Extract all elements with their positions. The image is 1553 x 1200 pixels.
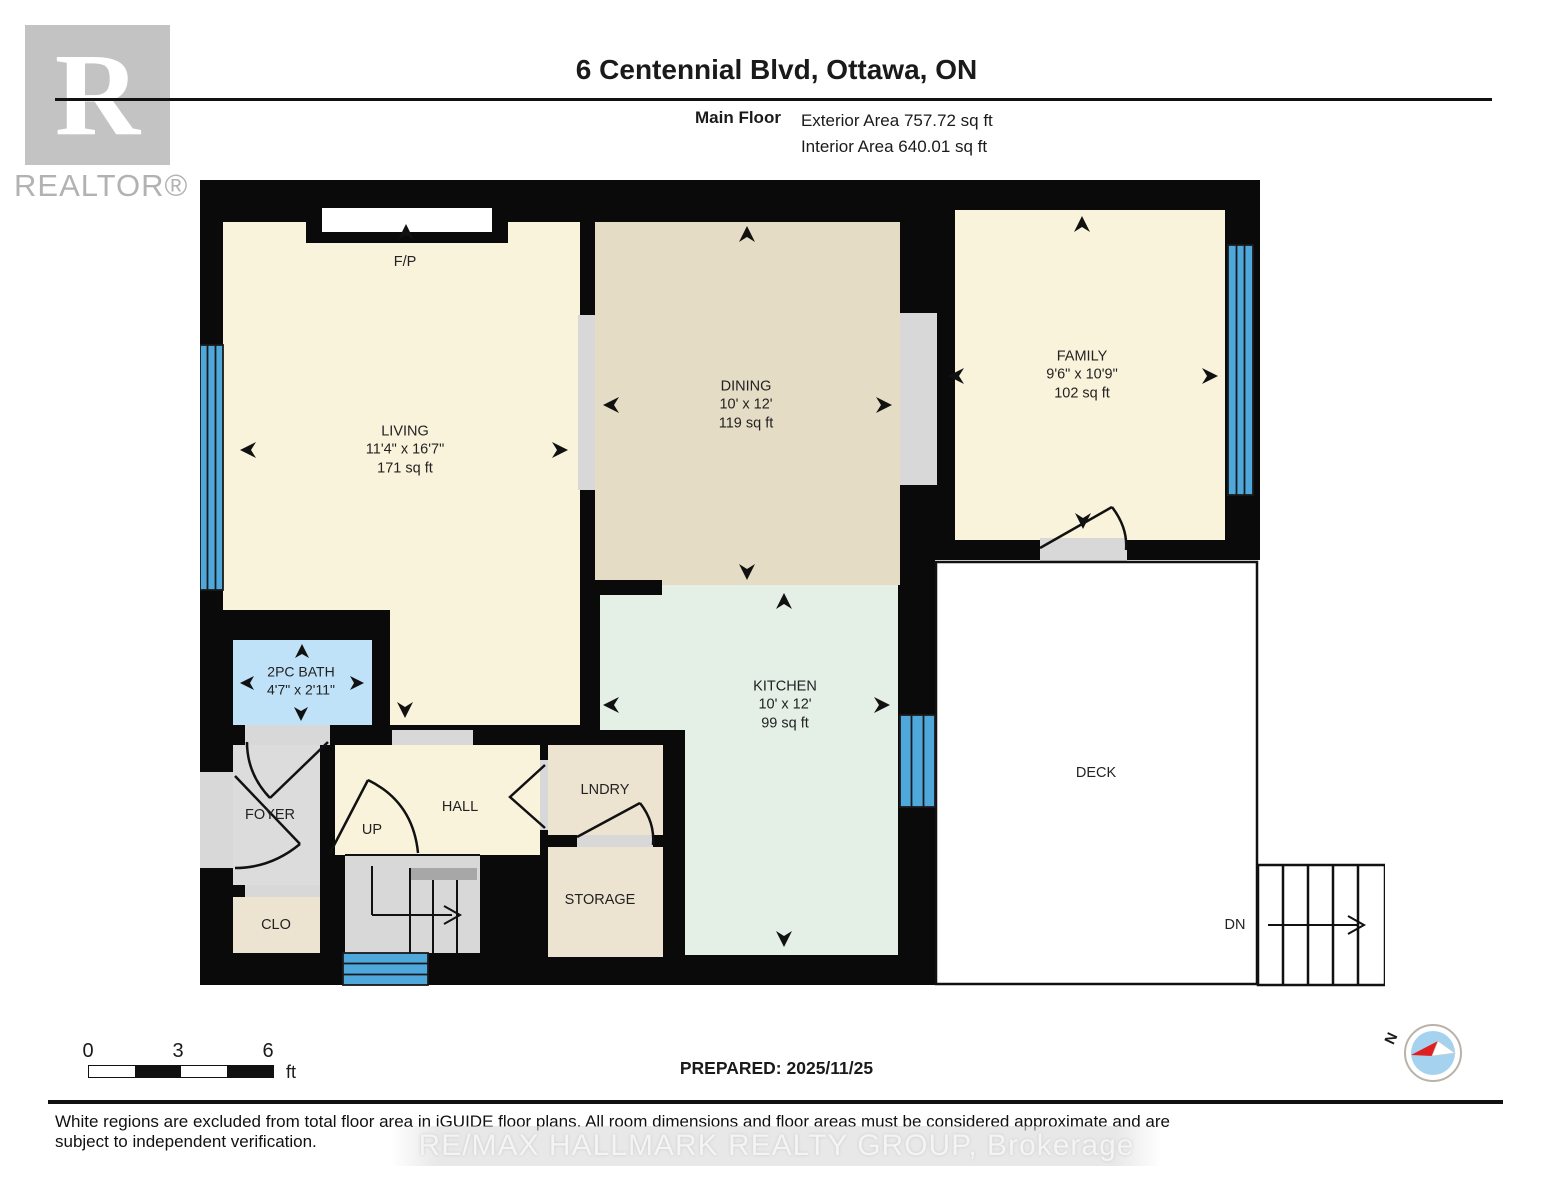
- dining-label: DINING 10' x 12' 119 sq ft: [719, 378, 774, 433]
- page-title: 6 Centennial Blvd, Ottawa, ON: [0, 54, 1553, 86]
- closet-label: CLO: [261, 916, 291, 934]
- dining-area: 119 sq ft: [719, 414, 774, 432]
- family-window: [1228, 245, 1253, 495]
- kitchen-name: KITCHEN: [753, 678, 817, 696]
- realtor-logo: R: [25, 25, 170, 165]
- kitchen-window: [900, 715, 935, 807]
- kitchen-area: 99 sq ft: [753, 714, 817, 732]
- fireplace-label: F/P: [394, 253, 417, 271]
- title-divider: [55, 98, 1492, 101]
- kitchen-label: KITCHEN 10' x 12' 99 sq ft: [753, 678, 817, 733]
- bath-label: 2PC BATH 4'7" x 2'11": [267, 663, 335, 698]
- stairs-up-linework: [345, 855, 480, 953]
- plan-linework: [200, 180, 1385, 990]
- compass: N: [1402, 1022, 1464, 1084]
- family-dims: 9'6" x 10'9": [1046, 366, 1117, 384]
- deck-label: DECK: [1076, 764, 1116, 782]
- foyer-label: FOYER: [245, 806, 295, 824]
- brokerage-watermark-text: RE/MAX HALLMARK REALTY GROUP, Brokerage: [391, 1126, 1163, 1166]
- fireplace-shape: [306, 208, 508, 243]
- compass-rose-icon: [1402, 1022, 1464, 1084]
- hall-label: HALL: [442, 798, 478, 816]
- compass-north-label: N: [1381, 1030, 1401, 1047]
- kitchen-dims: 10' x 12': [753, 696, 817, 714]
- footer-divider: [48, 1100, 1503, 1104]
- bath-door: [247, 742, 328, 798]
- living-name: LIVING: [366, 423, 444, 441]
- realtor-wordmark: REALTOR®: [14, 168, 188, 204]
- living-window: [200, 345, 223, 590]
- brokerage-watermark: RE/MAX HALLMARK REALTY GROUP, Brokerage: [0, 1126, 1553, 1166]
- family-name: FAMILY: [1046, 348, 1117, 366]
- laundry-bifold-door: [510, 765, 545, 828]
- family-area: 102 sq ft: [1046, 384, 1117, 402]
- deck-stairs-down: [1258, 865, 1385, 985]
- floor-info: Main Floor Exterior Area 757.72 sq ft In…: [695, 108, 993, 160]
- exterior-area: Exterior Area 757.72 sq ft: [801, 108, 993, 134]
- up-label: UP: [362, 821, 382, 839]
- living-dims: 11'4" x 16'7": [366, 441, 444, 459]
- bath-name: 2PC BATH: [267, 663, 335, 681]
- dining-dims: 10' x 12': [719, 396, 774, 414]
- laundry-label: LNDRY: [581, 781, 630, 799]
- family-label: FAMILY 9'6" x 10'9" 102 sq ft: [1046, 348, 1117, 403]
- floor-plan: LIVING 11'4" x 16'7" 171 sq ft DINING 10…: [200, 180, 1385, 990]
- down-label: DN: [1225, 916, 1246, 934]
- hall-door: [330, 780, 418, 853]
- front-window: [343, 953, 428, 985]
- living-label: LIVING 11'4" x 16'7" 171 sq ft: [366, 423, 444, 478]
- prepared-date: PREPARED: 2025/11/25: [0, 1058, 1553, 1079]
- interior-area: Interior Area 640.01 sq ft: [801, 134, 993, 160]
- dining-name: DINING: [719, 378, 774, 396]
- living-area: 171 sq ft: [366, 459, 444, 477]
- storage-label: STORAGE: [565, 891, 636, 909]
- bath-dims: 4'7" x 2'11": [267, 681, 335, 699]
- floor-label: Main Floor: [695, 108, 781, 160]
- storage-door: [577, 803, 653, 845]
